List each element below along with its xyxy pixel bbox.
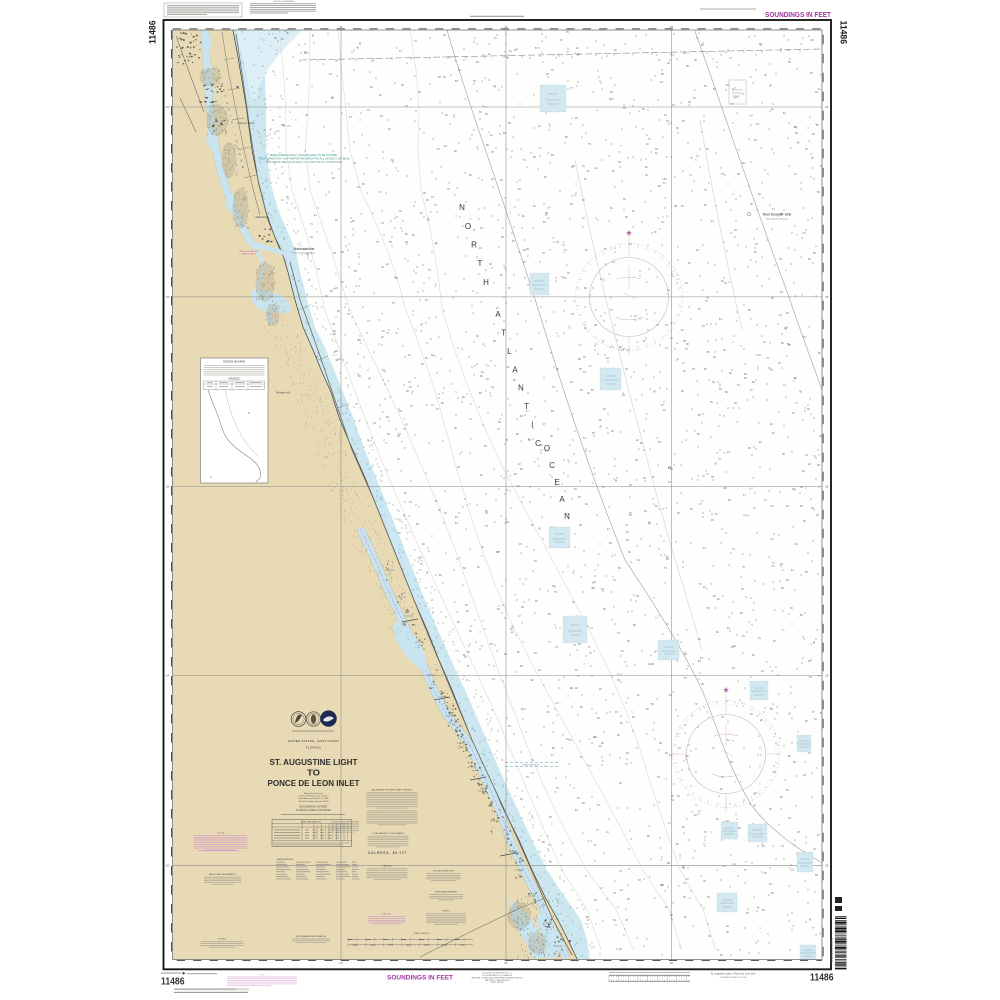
svg-text:NOTE S: NOTE S [442,911,450,913]
svg-text:SOURCES: SOURCES [228,379,240,381]
svg-text:(use local knowledge): (use local knowledge) [293,253,314,255]
svg-text:S: S [223,88,225,92]
svg-text:10': 10' [670,25,674,29]
svg-text:UNITED STATES - EAST COAST: UNITED STATES - EAST COAST [288,739,339,743]
svg-text:L: L [507,347,512,356]
svg-text:15': 15' [166,485,170,489]
svg-text:11486: 11486 [148,21,158,45]
svg-text:15': 15' [825,863,829,867]
svg-text:HOR CL 90 FT: HOR CL 90 FT [242,254,257,256]
svg-text:St. Augustine Light to Ponce d: St. Augustine Light to Ponce de Leon Inl… [711,973,756,976]
svg-text:Reef Snapper Sink: Reef Snapper Sink [763,213,792,217]
svg-text:15': 15' [166,105,170,109]
svg-text:15': 15' [166,295,170,299]
svg-text:10': 10' [504,25,508,29]
svg-text:NOTE A: NOTE A [217,831,225,834]
svg-text:11486: 11486 [810,973,834,984]
svg-text:PONCE DE LEON INLET: PONCE DE LEON INLET [268,778,361,788]
svg-text:N: N [459,203,465,212]
svg-text:LOCAL MAGNETIC DISTURBANCE: LOCAL MAGNETIC DISTURBANCE [372,832,405,835]
svg-text:S: S [236,139,238,143]
svg-text:N: N [564,512,570,521]
svg-text:Mercator Projection: Mercator Projection [304,792,324,795]
svg-text:ABBREVIATIONS: ABBREVIATIONS [277,858,294,861]
svg-text:S: S [228,107,230,111]
svg-text:MEASURED MILE: MEASURED MILE [523,763,540,766]
svg-text:NOTE: NOTE [259,974,265,976]
svg-text:A: A [218,69,220,73]
svg-text:A: A [512,365,518,374]
svg-text:O: O [465,222,471,231]
svg-text:SOUNDINGS IN FEET: SOUNDINGS IN FEET [387,974,454,981]
svg-text:POLLUTION REPORTS: POLLUTION REPORTS [433,870,455,872]
svg-text:T: T [501,328,506,337]
svg-text:N: N [220,75,222,79]
svg-text:A: A [559,495,565,504]
svg-text:R: R [471,241,477,250]
svg-text:SOURCE DIAGRAM: SOURCE DIAGRAM [223,360,245,363]
svg-text:ENDANGERED RIGHT WHALES AREA T: ENDANGERED RIGHT WHALES AREA TO BE AVOID… [271,153,338,157]
svg-text:15': 15' [825,485,829,489]
svg-text:15': 15' [825,295,829,299]
svg-text:SUPPLEMENTAL INFORMATION: SUPPLEMENTAL INFORMATION [296,935,327,938]
svg-text:T: T [524,402,529,411]
svg-text:10': 10' [504,961,508,965]
svg-text:SOUNDINGS IN FEET 1:80,000: SOUNDINGS IN FEET 1:80,000 [719,977,746,979]
svg-text:NOAA MANDATORY SHIP REPORTING: NOAA MANDATORY SHIP REPORTING AREA FOR A… [258,157,349,161]
svg-text:O: O [544,444,550,453]
svg-text:N: N [240,159,242,163]
svg-text:Matanzas Inlet: Matanzas Inlet [294,247,315,251]
svg-text:A: A [495,310,501,319]
svg-text:10': 10' [339,25,343,29]
svg-text:E: E [554,478,559,487]
svg-text:15': 15' [825,105,829,109]
svg-text:Painters Hill: Painters Hill [276,391,290,395]
svg-text:A: A [239,152,241,156]
svg-text:15': 15' [166,674,170,678]
svg-text:I: I [531,421,533,430]
svg-text:COLREGS, 80.727: COLREGS, 80.727 [368,851,407,855]
svg-text:(World Geodetic System 1984): (World Geodetic System 1984) [299,800,329,803]
svg-text:CAUTION: CAUTION [383,865,393,868]
svg-text:15': 15' [825,674,829,678]
svg-text:0 16520 67259 4: 0 16520 67259 4 [830,938,834,962]
svg-text:C: C [535,439,541,448]
svg-text:HURRICANE WARNING: HURRICANE WARNING [435,890,457,893]
svg-text:AT MEAN LOWER LOW WATER: AT MEAN LOWER LOW WATER [296,809,331,812]
svg-text:ANCHORAGE FOR DEEP DRAFT VESSE: ANCHORAGE FOR DEEP DRAFT VESSELS [372,788,413,791]
svg-text:SOUNDINGS IN FEET: SOUNDINGS IN FEET [765,12,832,19]
svg-text:Crescent Beach: Crescent Beach [237,122,255,125]
svg-text:NOTES: NOTES [219,939,227,941]
svg-text:C: C [549,461,555,470]
svg-text:H: H [483,278,489,287]
svg-text:Marineland: Marineland [256,215,269,219]
svg-text:A: A [231,120,233,124]
svg-text:11486: 11486 [839,21,849,45]
svg-text:COAST SURVEY: COAST SURVEY [490,981,505,984]
svg-text:(least depth unknown): (least depth unknown) [766,217,788,220]
svg-text:ST. AUGUSTINE LIGHT: ST. AUGUSTINE LIGHT [270,757,359,767]
svg-text:BASCULE BRIDGE: BASCULE BRIDGE [239,250,259,253]
svg-text:T: T [224,95,226,99]
svg-text:TO: TO [307,768,320,778]
svg-text:Scale 1:80,000 at Lat. 29°40': Scale 1:80,000 at Lat. 29°40' [299,795,328,798]
svg-text:North American Datum of 1983: North American Datum of 1983 [298,797,329,800]
svg-text:TIDAL INFORMATION: TIDAL INFORMATION [301,821,322,824]
svg-text:CAUTION: CAUTION [382,913,392,916]
svg-text:15': 15' [166,863,170,867]
svg-text:T: T [478,259,483,268]
svg-text:FLORIDA: FLORIDA [306,746,322,750]
svg-text:N: N [518,384,524,393]
svg-text:A: A [226,101,228,105]
svg-text:AND ABOVE SEE NOTE AND U.S. CO: AND ABOVE SEE NOTE AND U.S. COAST PILOT … [266,160,342,164]
svg-text:10': 10' [670,961,674,965]
svg-text:10': 10' [339,961,343,965]
svg-text:SCALE 1:80,000: SCALE 1:80,000 [414,932,430,935]
svg-text:NOTICE TO MARINERS: NOTICE TO MARINERS [274,0,295,3]
svg-text:ADDITIONAL INFORMATION: ADDITIONAL INFORMATION [209,873,236,876]
svg-text:11486: 11486 [161,976,185,987]
svg-text:A: A [221,82,223,86]
